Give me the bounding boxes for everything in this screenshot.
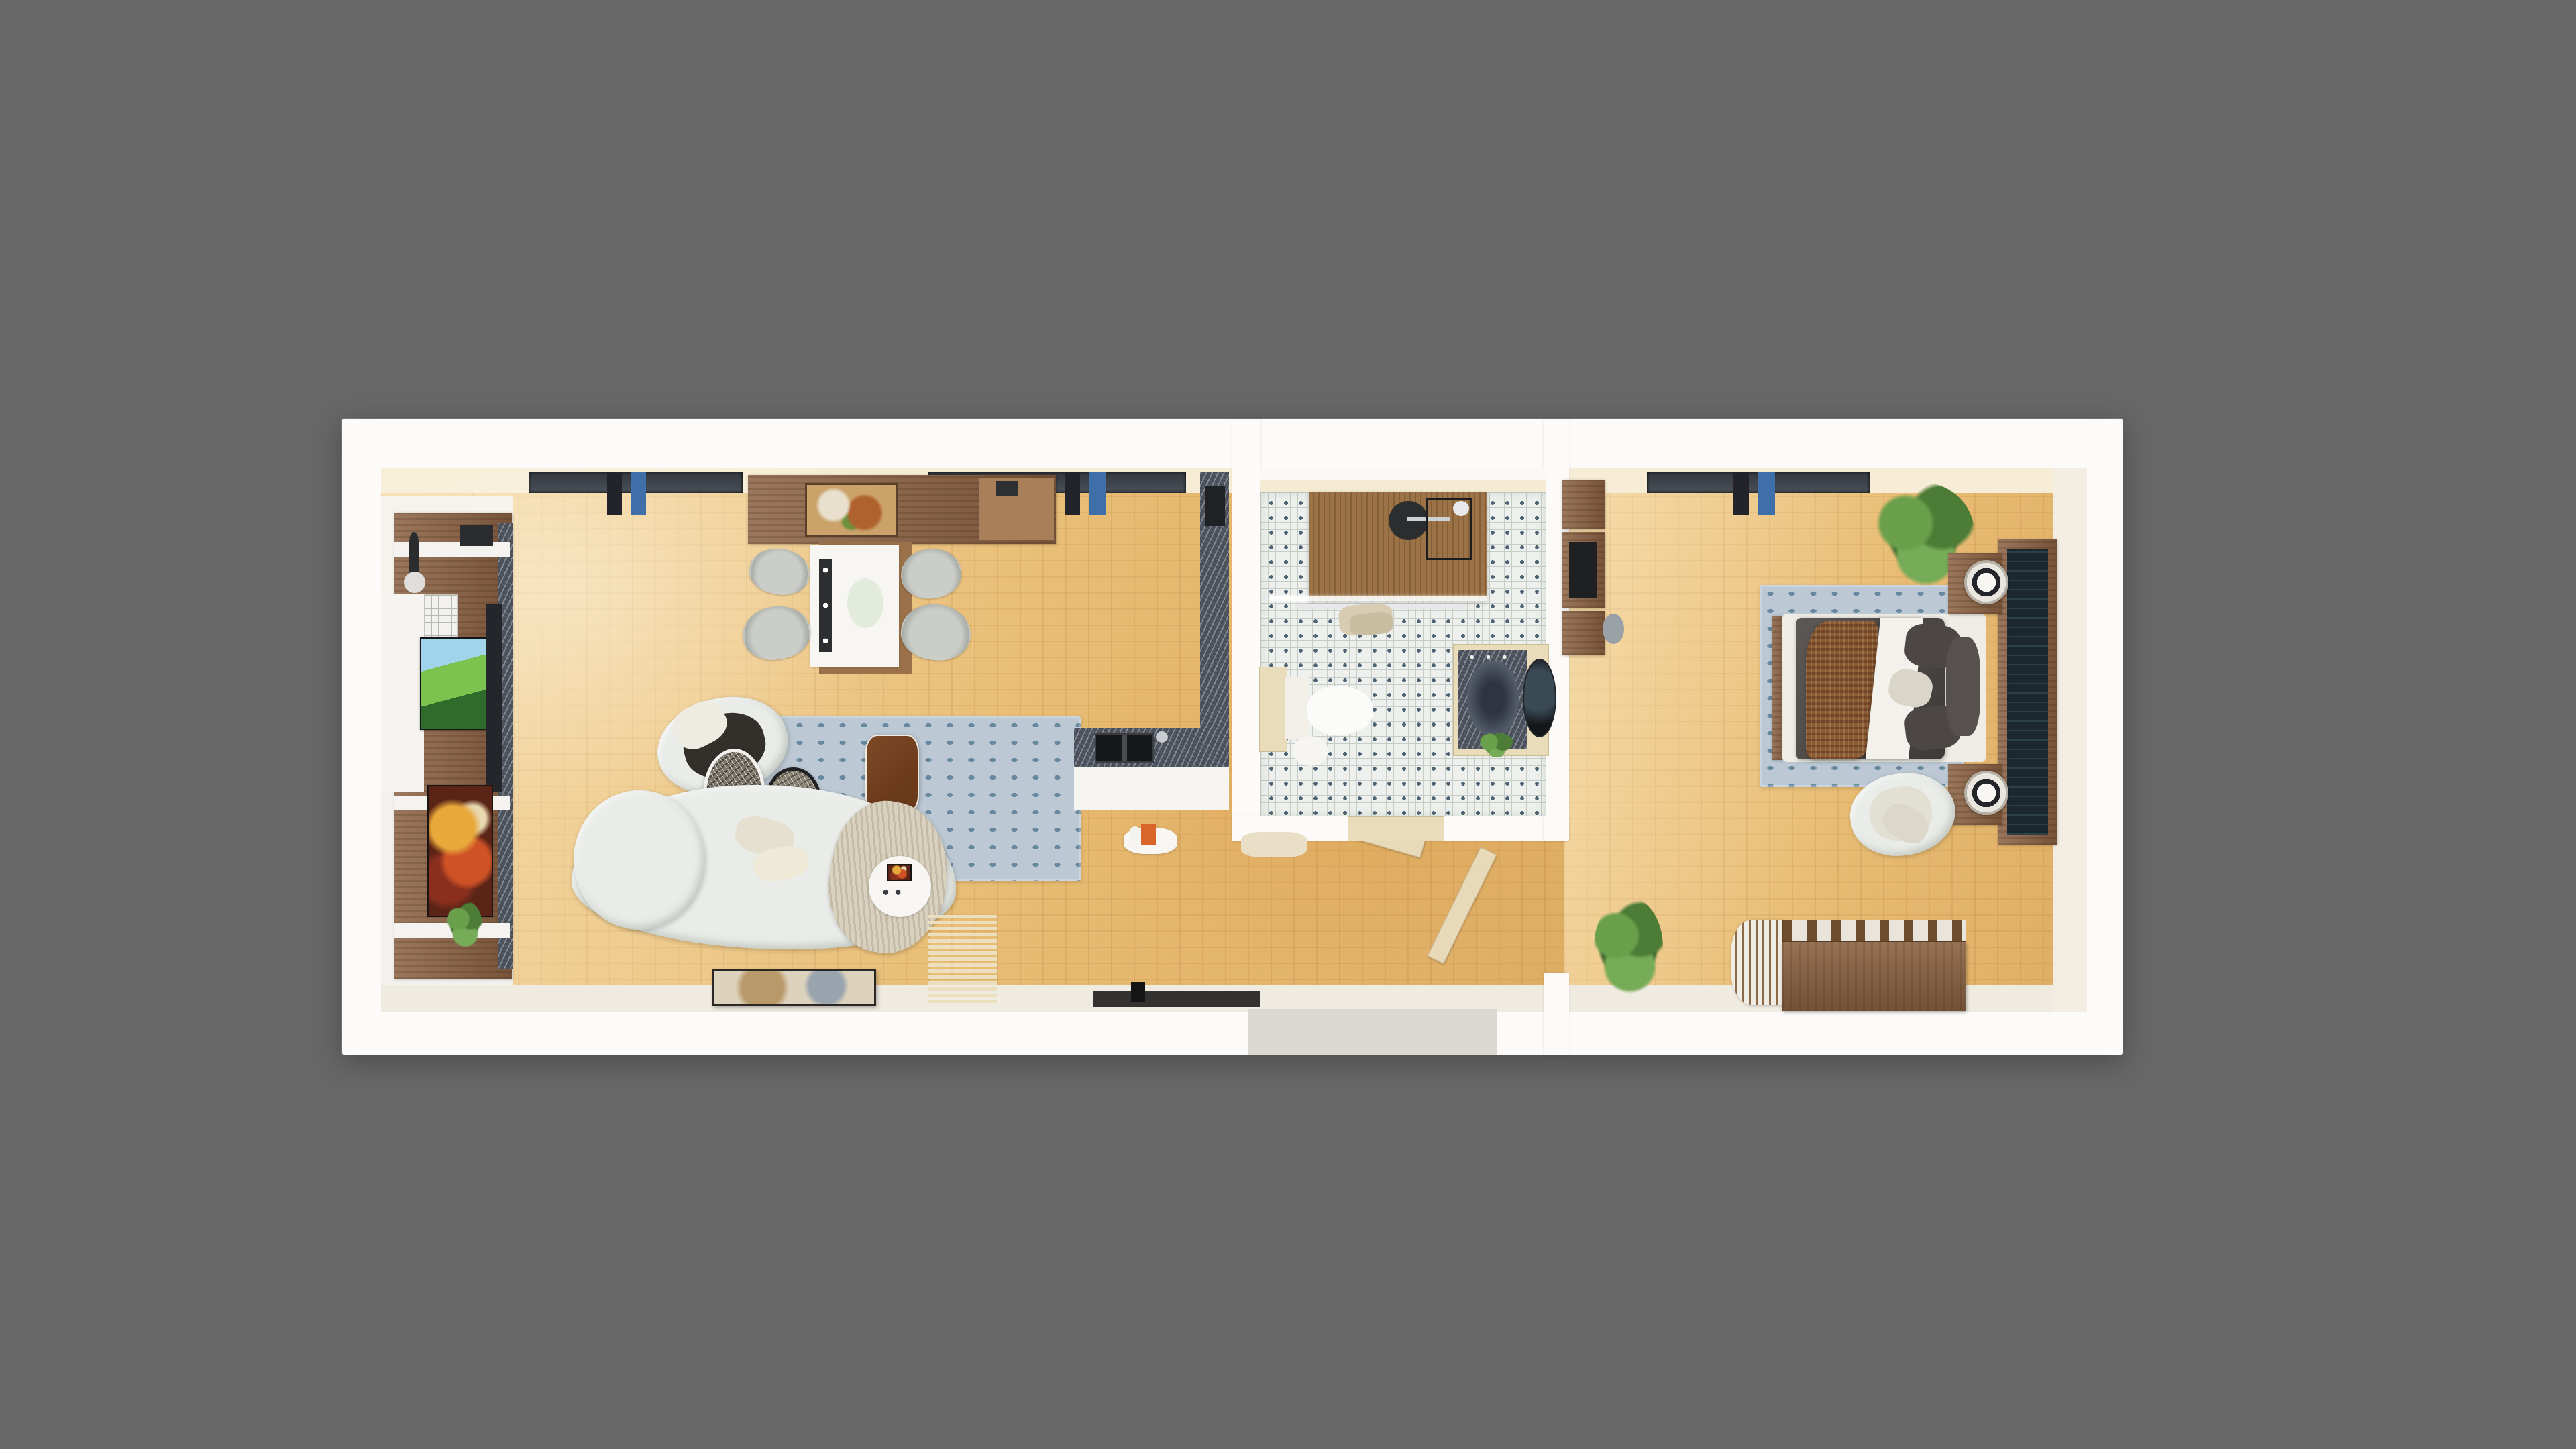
vanity-plant <box>1477 733 1515 757</box>
vanity-basin <box>1467 661 1519 737</box>
bed-pillow-3 <box>1946 637 1980 736</box>
hall-console-box <box>1141 824 1155 844</box>
bathroom-door-opening <box>1348 816 1444 841</box>
nightstand-lamp-top <box>1964 560 2008 604</box>
towel-2 <box>1349 611 1393 636</box>
sideboard-decor <box>996 481 1019 496</box>
hall-console-jar <box>1129 826 1142 841</box>
screenshot-root: { "meta": { "description": "3D rendered … <box>0 0 2576 1449</box>
curtain-hooks-3 <box>1733 472 1776 515</box>
bedroom-plant-bottom <box>1594 897 1664 999</box>
storage-bench <box>1782 942 1966 1011</box>
toilet-bowl <box>1307 686 1373 735</box>
bedroom-cabinet <box>1562 611 1605 655</box>
curtain-hooks-2 <box>1065 472 1106 515</box>
shower-glass-panel <box>1270 596 1487 602</box>
sofa-chaise <box>574 790 705 930</box>
headboard-panel <box>2007 549 2048 835</box>
kitchen-appliance <box>1205 486 1225 526</box>
slatted-bench <box>928 914 998 1003</box>
bedroom-desk-chair <box>1603 614 1624 644</box>
toilet-lid <box>1293 736 1328 766</box>
curtain-hooks-1 <box>607 472 646 515</box>
side-table-book <box>887 864 912 882</box>
media-dark-strip <box>486 604 502 792</box>
dining-centerpiece <box>847 578 883 628</box>
nightstand-lamp-bottom <box>1964 771 2008 815</box>
media-artwork <box>427 785 493 916</box>
bedroom-wardrobe <box>1562 480 1605 529</box>
storage-bench-top <box>1782 920 1966 941</box>
media-plant <box>447 900 482 950</box>
bedroom-desk-top <box>1569 542 1597 598</box>
hall-side-table <box>1241 832 1307 858</box>
side-table-bowls <box>879 885 904 899</box>
dining-light-rail <box>819 559 832 652</box>
bedroom-right-wall-face <box>2053 468 2087 1012</box>
floor-plan <box>342 419 2123 1055</box>
entry-door-opening <box>1248 1009 1498 1055</box>
media-decor-books <box>460 525 493 546</box>
floor-picture <box>712 969 876 1006</box>
bathroom-top-face <box>1260 480 1546 492</box>
food-picture-frame <box>805 483 898 537</box>
vanity-pebbles <box>1464 652 1513 662</box>
media-cabinet <box>381 594 424 792</box>
kitchen-sink <box>1095 733 1154 763</box>
vanity-mirror <box>1523 659 1556 738</box>
tv-screen <box>420 637 496 729</box>
shower-wand <box>1453 501 1469 516</box>
entry-door-leaf <box>1093 991 1261 1008</box>
kitchen-faucet <box>1156 731 1169 743</box>
entry-door-handle <box>1131 982 1145 1002</box>
toilet-cabinet <box>1259 667 1287 752</box>
render-canvas <box>0 0 2576 1449</box>
kitchen-counter-front <box>1074 767 1229 810</box>
wall-living-bathroom <box>1232 419 1260 841</box>
toilet-tank <box>1285 677 1309 739</box>
wall-bedroom-lower <box>1544 973 1568 1055</box>
bench-cushion-stack <box>1731 920 1784 1005</box>
